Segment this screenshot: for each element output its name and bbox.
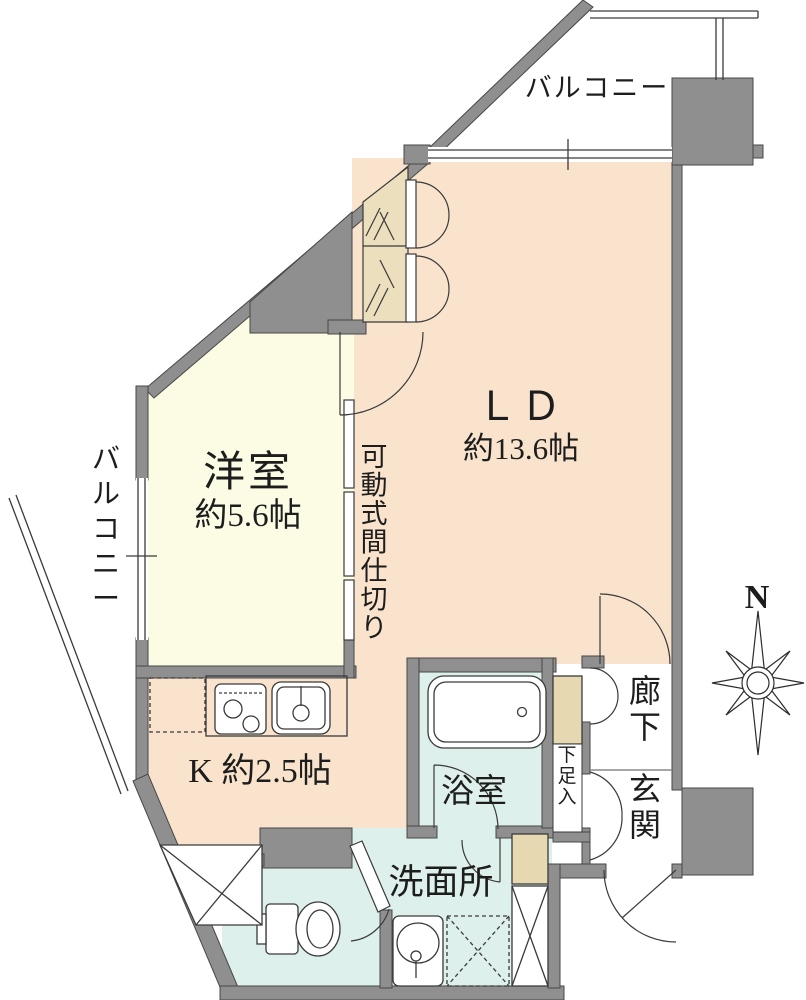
shoe-cabinet-doors [590, 772, 622, 860]
wall-toilet-north-chunk [260, 828, 352, 868]
wall-hall-west-top [582, 656, 604, 668]
wall-partition-stub [344, 638, 354, 678]
wall-ld-top-left [404, 145, 430, 164]
ld-window-gap [428, 147, 672, 162]
bathtub-icon [428, 676, 546, 748]
closet-door-leaf-2 [406, 254, 416, 322]
compass-icon [712, 611, 804, 755]
wall-kitchen-west [136, 676, 148, 782]
label-ld-size: 約13.6帖 [463, 431, 579, 466]
wall-east [672, 165, 682, 790]
label-kitchen: K 約2.5帖 [188, 752, 332, 790]
label-balcony-left: バルコニー [92, 444, 120, 615]
wall-bath-west [407, 658, 419, 838]
wall-entrance-hinge [672, 864, 682, 878]
label-washroom: 洗面所 [388, 863, 493, 902]
floor-plan: バルコニー バルコニー ＬＤ 約13.6帖 洋室 約5.6帖 可動式間仕切り K… [0, 0, 806, 1000]
label-shoe-cabinet: 下足入 [557, 745, 576, 808]
label-partition: 可動式間仕切り [361, 442, 388, 643]
label-bedroom-name: 洋室 [203, 449, 293, 496]
wall-washroom-east [548, 864, 560, 988]
wall-bedroom-north [328, 320, 366, 334]
wall-bath-north [407, 658, 556, 672]
hall-storage-doors [590, 668, 618, 724]
wall-toilet-divider [380, 910, 392, 988]
label-entrance: 玄関 [629, 771, 661, 843]
top-balcony-railing [590, 11, 758, 18]
label-hallway: 廊下 [629, 673, 661, 745]
label-bath: 浴室 [441, 773, 507, 810]
compass-circle-inner [747, 672, 769, 694]
storage-box-hall [553, 676, 582, 744]
wall-southeast-block [682, 788, 753, 875]
wall-bath-south-left [407, 826, 437, 838]
entrance-door [604, 870, 676, 942]
wall-corner-wedge [250, 212, 352, 333]
wall-pillar-tab [753, 145, 763, 158]
label-balcony-top: バルコニー [525, 73, 669, 103]
wall-west-upper [136, 386, 148, 480]
storage-box-washroom [512, 834, 548, 884]
label-bedroom-size: 約5.6帖 [194, 497, 301, 534]
label-ld-name: ＬＤ [477, 384, 565, 429]
toilet-tank [266, 904, 298, 954]
top-balcony-railing-support [716, 18, 723, 80]
label-compass-n: N [745, 579, 770, 616]
wall-pillar [672, 78, 753, 165]
wall-shoe-bottom [553, 832, 590, 842]
closet-door-leaf-1 [406, 180, 416, 248]
wall-hall-west-mid [582, 722, 590, 774]
